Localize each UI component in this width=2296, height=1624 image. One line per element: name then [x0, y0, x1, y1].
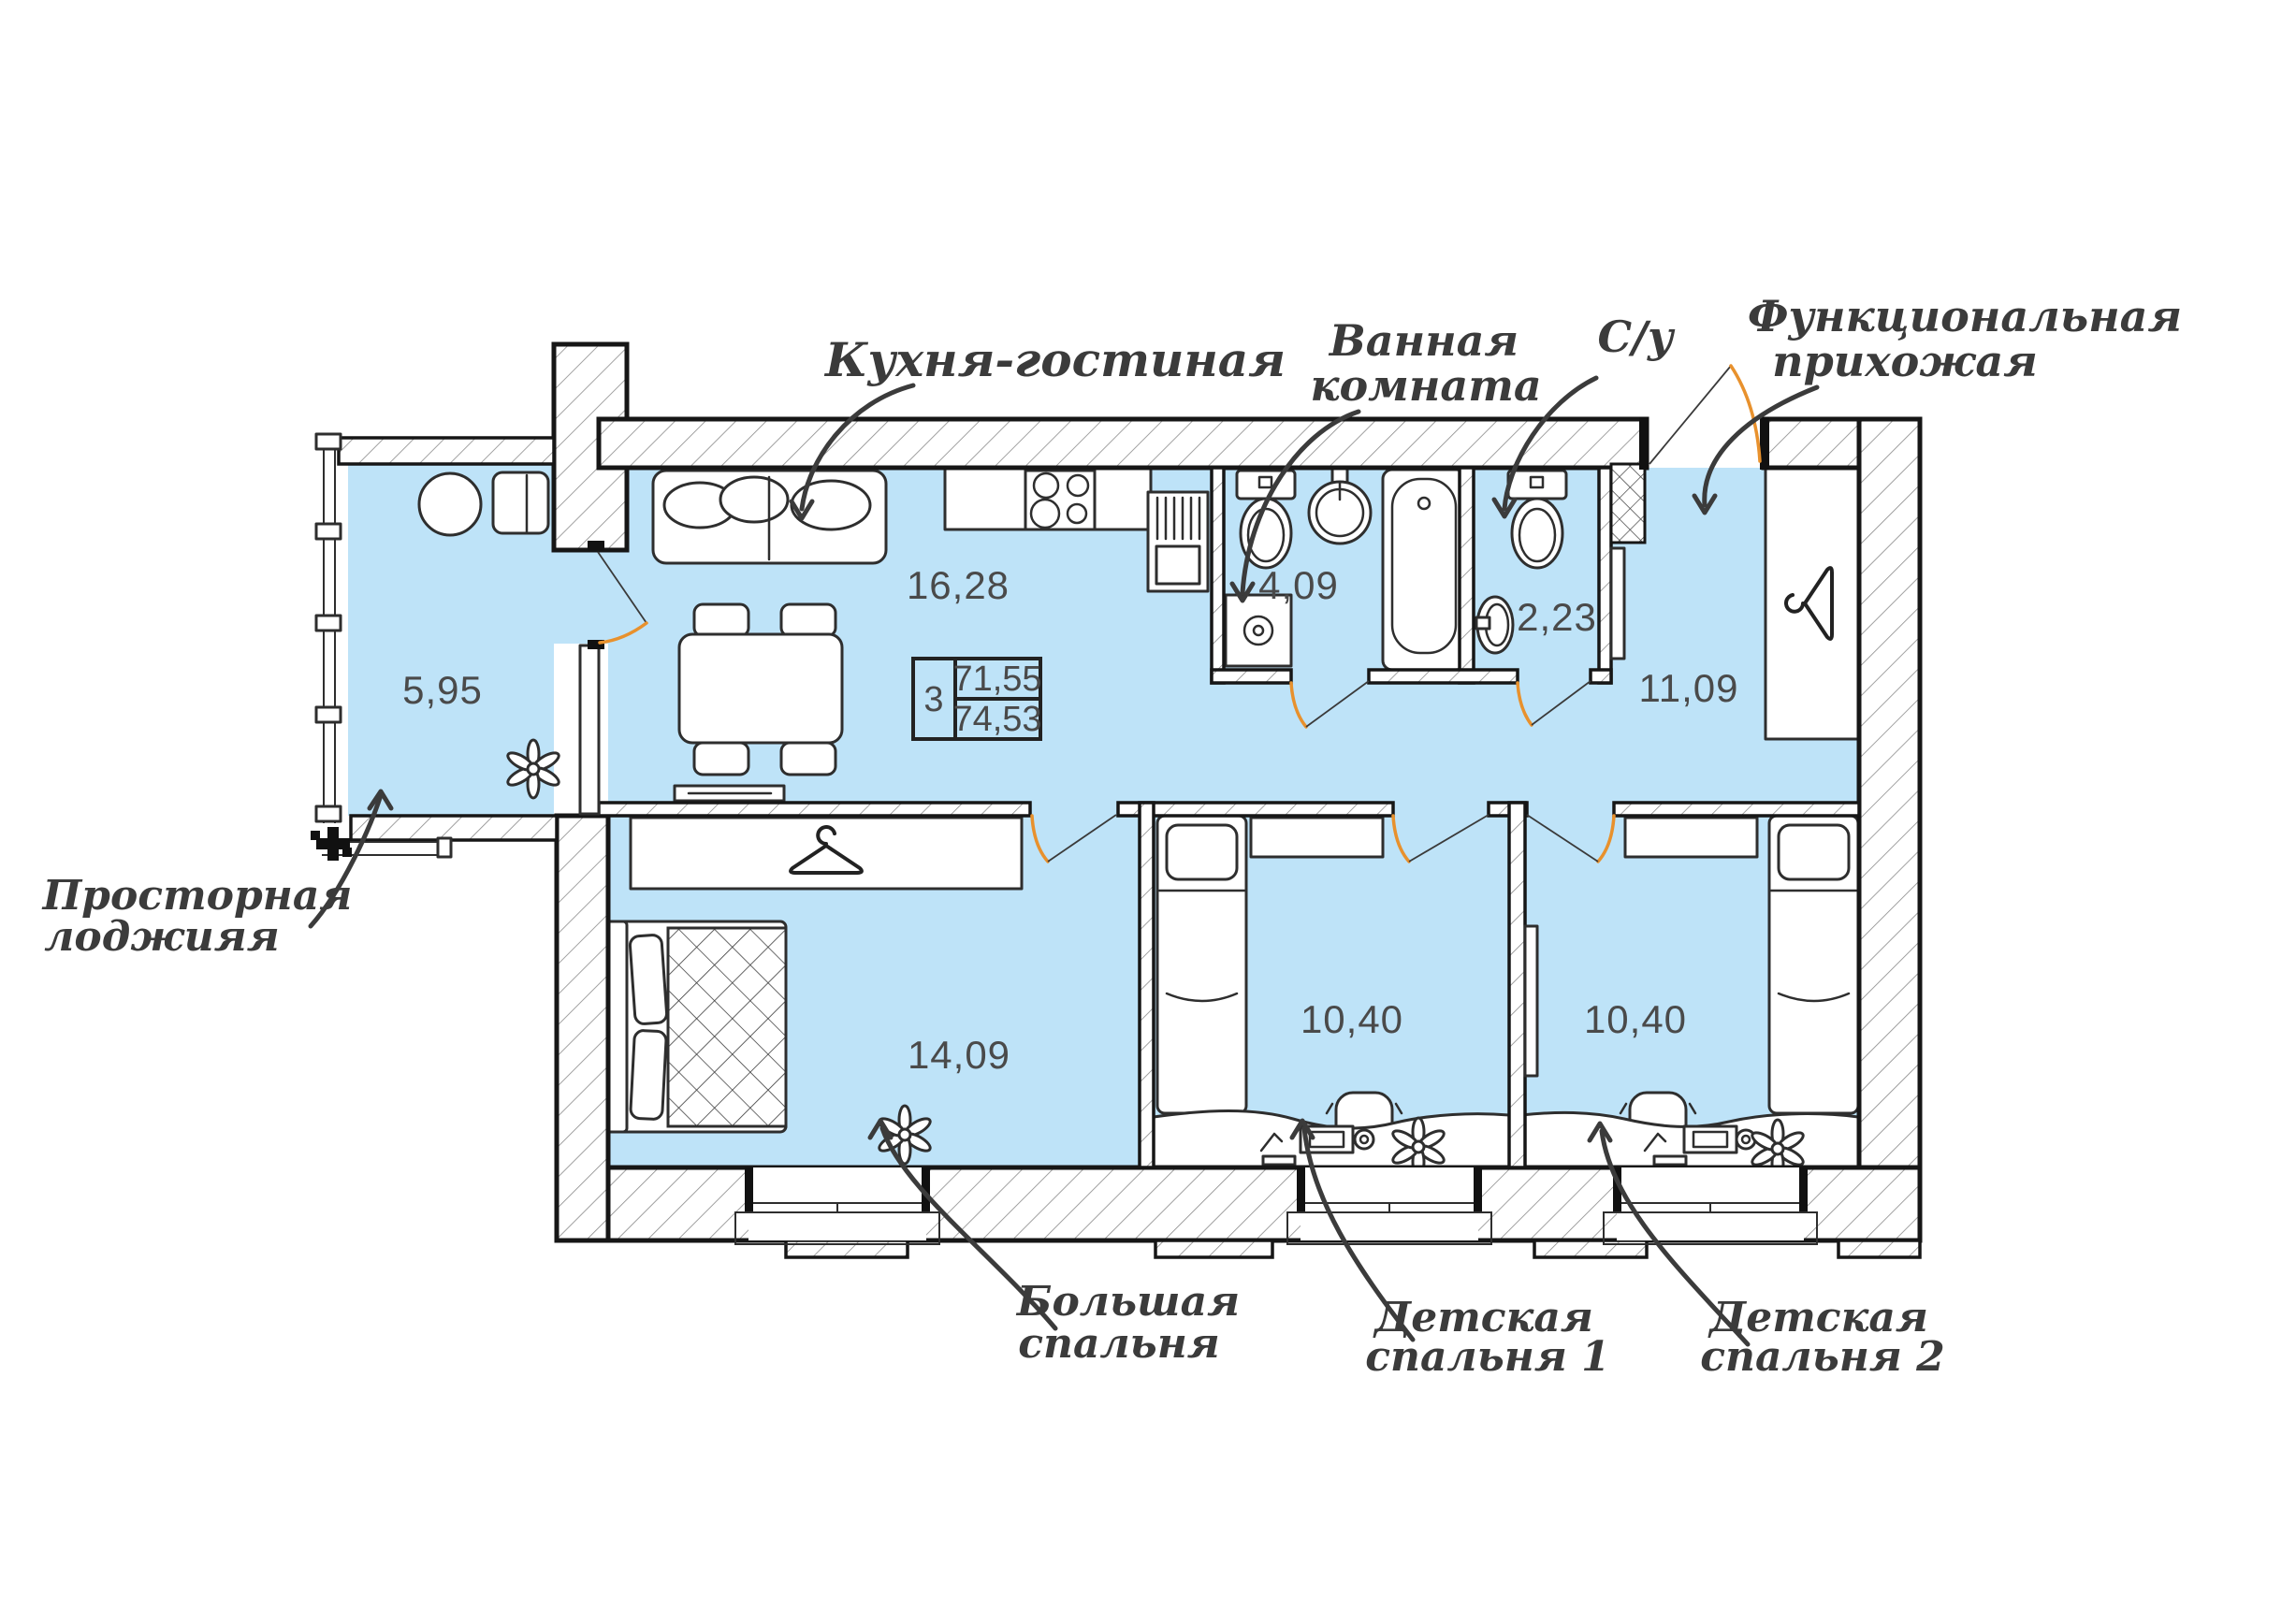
- pier-stub: [1155, 1240, 1272, 1257]
- pier-stub: [1838, 1240, 1920, 1257]
- kids2-door-leaf: [1525, 926, 1537, 1076]
- sofa-cushion: [720, 477, 788, 522]
- pillow: [1779, 825, 1849, 879]
- balcony-panel: [580, 645, 599, 814]
- label-bathroom-2: комната: [1310, 360, 1541, 411]
- stove: [1025, 471, 1095, 529]
- wall-corridor-1: [599, 803, 1030, 816]
- label-wc: С/у: [1598, 312, 1676, 362]
- shelf: [1251, 818, 1383, 857]
- pillow: [1167, 825, 1237, 879]
- dining-chair: [781, 743, 836, 775]
- label-hallway-1: Функциональная: [1748, 291, 2182, 341]
- hallway-area: 11,09: [1639, 666, 1739, 710]
- dining-table: [679, 634, 842, 743]
- window-kids2: [1604, 1167, 1817, 1244]
- corner-sink: [1476, 597, 1513, 653]
- hallway-furniture: [1766, 455, 1859, 739]
- wall-master-kids1: [1140, 803, 1154, 1167]
- wall-top: [599, 419, 1647, 468]
- monitor: [1684, 1126, 1737, 1153]
- wc-area: 2,23: [1517, 595, 1597, 639]
- label-master-2: спальня: [1018, 1320, 1220, 1368]
- wall-loggia-top: [339, 438, 554, 464]
- cup: [1355, 1130, 1373, 1149]
- fridge: [1148, 492, 1208, 591]
- bathroom-area: 4,09: [1258, 563, 1339, 607]
- wall-wc-hall: [1599, 468, 1611, 683]
- entrance-door: [1639, 366, 1769, 470]
- wall-loggia-bottom: [351, 816, 557, 840]
- wall-right: [1859, 419, 1920, 1240]
- label-hallway-2: прихожая: [1772, 336, 2038, 386]
- total-area: 74,53: [952, 700, 1041, 739]
- loggia-table: [419, 473, 481, 535]
- double-bed: [606, 921, 786, 1132]
- wc-door-leaf: [1611, 548, 1624, 659]
- loggia-glazing: [316, 434, 341, 823]
- living-area: 71,55: [952, 660, 1041, 699]
- keyboard: [1654, 1156, 1686, 1165]
- keyboard: [1263, 1156, 1295, 1165]
- cross-icon: [311, 827, 352, 861]
- toilet: [1237, 471, 1295, 568]
- wall-left-master: [557, 816, 608, 1240]
- pier-stub: [1534, 1240, 1647, 1257]
- loggia-area: 5,95: [402, 668, 483, 712]
- label-kids2-2: спальня 2: [1700, 1333, 1945, 1381]
- wall-bath-bottom: [1212, 670, 1291, 683]
- label-bathroom-1: Ванная: [1328, 315, 1519, 366]
- wall-corridor-2: [1118, 803, 1393, 816]
- label-kitchen: Кухня-гостиная: [823, 332, 1286, 387]
- dining-chair: [694, 604, 748, 636]
- dining-chair: [781, 604, 836, 636]
- master-area: 14,09: [908, 1033, 1010, 1077]
- wall-wc-bottom: [1591, 670, 1611, 683]
- floor-plan: 5,95 16,28 4,09 2,23 11,09 14,09 10,40 1…: [0, 0, 2296, 1624]
- dining-chair: [694, 743, 748, 775]
- wall-corridor-4: [1614, 803, 1859, 816]
- pier-stub: [786, 1240, 908, 1257]
- kids2-area: 10,40: [1584, 997, 1687, 1041]
- wall-bath-wc-bottom: [1369, 670, 1518, 683]
- kids1-area: 10,40: [1301, 997, 1403, 1041]
- toilet: [1508, 471, 1566, 568]
- vent-shaft: [1611, 464, 1645, 543]
- wall-kitchen-bath: [1212, 468, 1224, 683]
- loggia-armchair: [493, 472, 548, 533]
- wall-bath-wc: [1460, 468, 1474, 683]
- shelf: [1625, 818, 1757, 857]
- rooms-count: 3: [923, 680, 943, 719]
- window-master: [735, 1167, 939, 1244]
- kitchen-area: 16,28: [907, 563, 1010, 607]
- bathtub: [1383, 470, 1465, 670]
- label-loggia-2: лоджияя: [44, 913, 280, 961]
- label-kids1-2: спальня 1: [1365, 1333, 1610, 1381]
- wall-kids1-kids2: [1509, 803, 1525, 1167]
